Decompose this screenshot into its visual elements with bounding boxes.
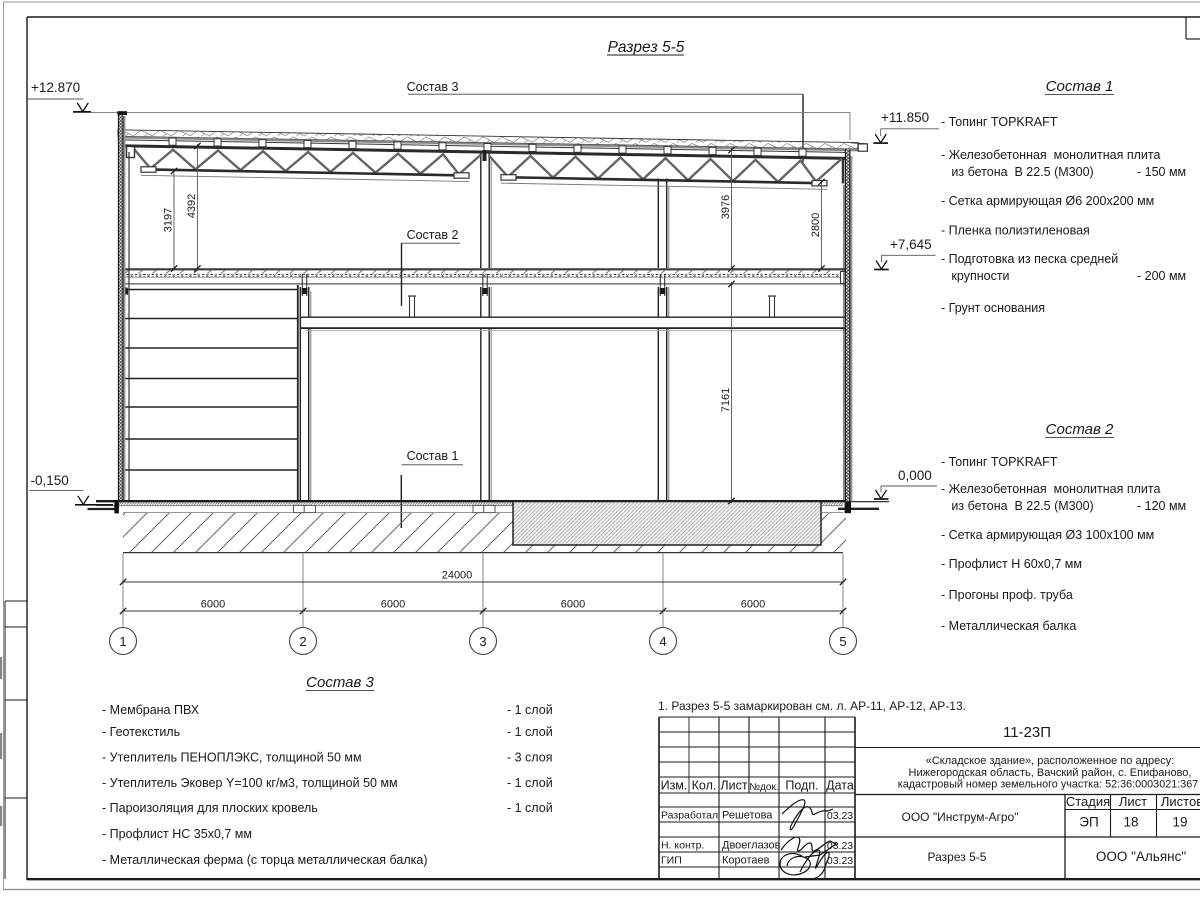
svg-text:- 1 слой: - 1 слой <box>507 776 553 790</box>
svg-text:из бетона В 22.5 (М300): из бетона В 22.5 (М300) <box>941 499 1094 513</box>
svg-text:Состав 1: Состав 1 <box>407 449 459 463</box>
svg-text:- 3 слоя: - 3 слоя <box>507 751 552 765</box>
svg-text:- Железобетонная монолитная п: - Железобетонная монолитная плита <box>941 148 1160 162</box>
svg-text:№док.: №док. <box>749 782 778 793</box>
svg-text:7161: 7161 <box>720 388 732 412</box>
svg-text:- 1 слой: - 1 слой <box>507 725 553 739</box>
svg-text:ГИП: ГИП <box>661 855 682 867</box>
svg-text:Разработал: Разработал <box>661 810 718 822</box>
svg-text:- 1 слой: - 1 слой <box>507 801 553 815</box>
svg-text:Лист: Лист <box>1119 794 1147 809</box>
svg-text:Изм.: Изм. <box>661 779 688 793</box>
svg-text:- 150 мм: - 150 мм <box>1137 165 1186 179</box>
svg-text:6000: 6000 <box>741 599 765 611</box>
svg-text:Коротаев: Коротаев <box>722 855 770 867</box>
svg-text:Разрез 5-5: Разрез 5-5 <box>928 850 987 864</box>
svg-text:Состав 3: Состав 3 <box>306 674 374 691</box>
svg-text:«Складское здание», расположен: «Складское здание», расположенное по адр… <box>926 755 1175 767</box>
svg-text:19: 19 <box>1172 815 1187 830</box>
svg-text:6000: 6000 <box>201 599 225 611</box>
svg-text:ЭП: ЭП <box>1079 815 1098 830</box>
svg-text:Нижегородская область, Вачский: Нижегородская область, Вачский район, с.… <box>909 767 1192 779</box>
svg-text:- Сетка армирующая Ø3 100х100: - Сетка армирующая Ø3 100х100 мм <box>941 528 1154 542</box>
svg-text:- Пленка полиэтиленовая: - Пленка полиэтиленовая <box>941 224 1090 238</box>
svg-text:Н. контр.: Н. контр. <box>661 840 704 852</box>
svg-text:Состав 2: Состав 2 <box>407 228 459 242</box>
svg-text:ООО "Инструм-Агро": ООО "Инструм-Агро" <box>902 810 1019 824</box>
svg-text:6000: 6000 <box>381 599 405 611</box>
svg-text:- Утеплитель Эковер Y=100 кг/м: - Утеплитель Эковер Y=100 кг/м3, толщино… <box>102 776 398 790</box>
svg-text:03.23: 03.23 <box>827 855 853 867</box>
svg-text:Разрез 5-5: Разрез 5-5 <box>608 39 685 56</box>
svg-text:- Геотекстиль: - Геотекстиль <box>102 725 180 739</box>
svg-text:- Мембрана ПВХ: - Мембрана ПВХ <box>102 703 200 717</box>
svg-text:4: 4 <box>659 634 666 649</box>
svg-text:3976: 3976 <box>720 195 732 219</box>
svg-text:Подп.: Подп. <box>785 779 818 793</box>
svg-text:- Топинг TOPKRAFT: - Топинг TOPKRAFT <box>941 455 1058 469</box>
svg-text:Кол.: Кол. <box>692 779 717 793</box>
svg-text:- Подготовка из песка средней: - Подготовка из песка средней <box>941 252 1118 266</box>
svg-text:+11.850: +11.850 <box>881 110 929 125</box>
svg-text:+12.870: +12.870 <box>31 80 80 95</box>
svg-text:- 120 мм: - 120 мм <box>1137 499 1186 513</box>
svg-text:3197: 3197 <box>163 208 175 232</box>
svg-text:- Утеплитель ПЕНОПЛЭКС, толщин: - Утеплитель ПЕНОПЛЭКС, толщиной 50 мм <box>102 751 362 765</box>
svg-text:- Пароизоляция для плоских кро: - Пароизоляция для плоских кровель <box>102 801 318 815</box>
svg-text:+7,645: +7,645 <box>890 237 932 252</box>
svg-text:5: 5 <box>839 634 846 649</box>
svg-text:- Металлическая ферма (с торца: - Металлическая ферма (с торца металличе… <box>102 853 428 867</box>
svg-text:Состав 1: Состав 1 <box>1046 78 1114 95</box>
svg-text:Листов: Листов <box>1161 794 1200 809</box>
svg-text:03.23: 03.23 <box>827 810 853 822</box>
svg-text:Стадия: Стадия <box>1066 794 1110 809</box>
svg-text:Лист: Лист <box>720 779 747 793</box>
svg-text:3: 3 <box>479 634 486 649</box>
svg-text:крупности: крупности <box>941 269 1010 283</box>
svg-text:Дата: Дата <box>826 779 854 793</box>
svg-text:-0,150: -0,150 <box>31 473 69 488</box>
svg-text:4392: 4392 <box>186 194 198 218</box>
svg-text:2: 2 <box>299 634 306 649</box>
svg-text:Двоеглазов: Двоеглазов <box>722 840 781 852</box>
svg-text:- Профлист Н 60х0,7 мм: - Профлист Н 60х0,7 мм <box>941 557 1082 571</box>
svg-text:1. Разрез 5-5 замаркирован см.: 1. Разрез 5-5 замаркирован см. л. АР-11,… <box>658 699 966 713</box>
svg-text:кадастровый номер земельного у: кадастровый номер земельного участка: 52… <box>898 779 1198 791</box>
svg-text:6000: 6000 <box>561 599 585 611</box>
svg-text:- Профлист НС 35х0,7 мм: - Профлист НС 35х0,7 мм <box>102 827 252 841</box>
svg-text:- 200 мм: - 200 мм <box>1137 269 1186 283</box>
svg-text:- Сетка армирующая Ø6 200х200: - Сетка армирующая Ø6 200х200 мм <box>941 194 1154 208</box>
svg-text:0,000: 0,000 <box>898 468 932 483</box>
svg-text:2800: 2800 <box>810 213 822 237</box>
svg-text:ООО "Альянс": ООО "Альянс" <box>1096 849 1186 864</box>
svg-text:11-23П: 11-23П <box>1003 724 1051 741</box>
svg-text:24000: 24000 <box>442 570 473 582</box>
svg-text:Состав 2: Состав 2 <box>1046 421 1114 438</box>
svg-text:- 1 слой: - 1 слой <box>507 703 553 717</box>
svg-text:1: 1 <box>119 634 126 649</box>
svg-text:- Грунт основания: - Грунт основания <box>941 301 1045 315</box>
svg-text:- Прогоны проф. труба: - Прогоны проф. труба <box>941 588 1073 602</box>
svg-text:- Металлическая балка: - Металлическая балка <box>941 619 1076 633</box>
svg-text:Решетова: Решетова <box>722 810 773 822</box>
svg-text:Состав 3: Состав 3 <box>407 80 459 94</box>
svg-text:- Железобетонная монолитная п: - Железобетонная монолитная плита <box>941 482 1160 496</box>
svg-text:18: 18 <box>1123 815 1138 830</box>
svg-text:- Топинг TOPKRAFT: - Топинг TOPKRAFT <box>941 115 1058 129</box>
svg-text:из бетона В 22.5 (М300): из бетона В 22.5 (М300) <box>941 165 1094 179</box>
